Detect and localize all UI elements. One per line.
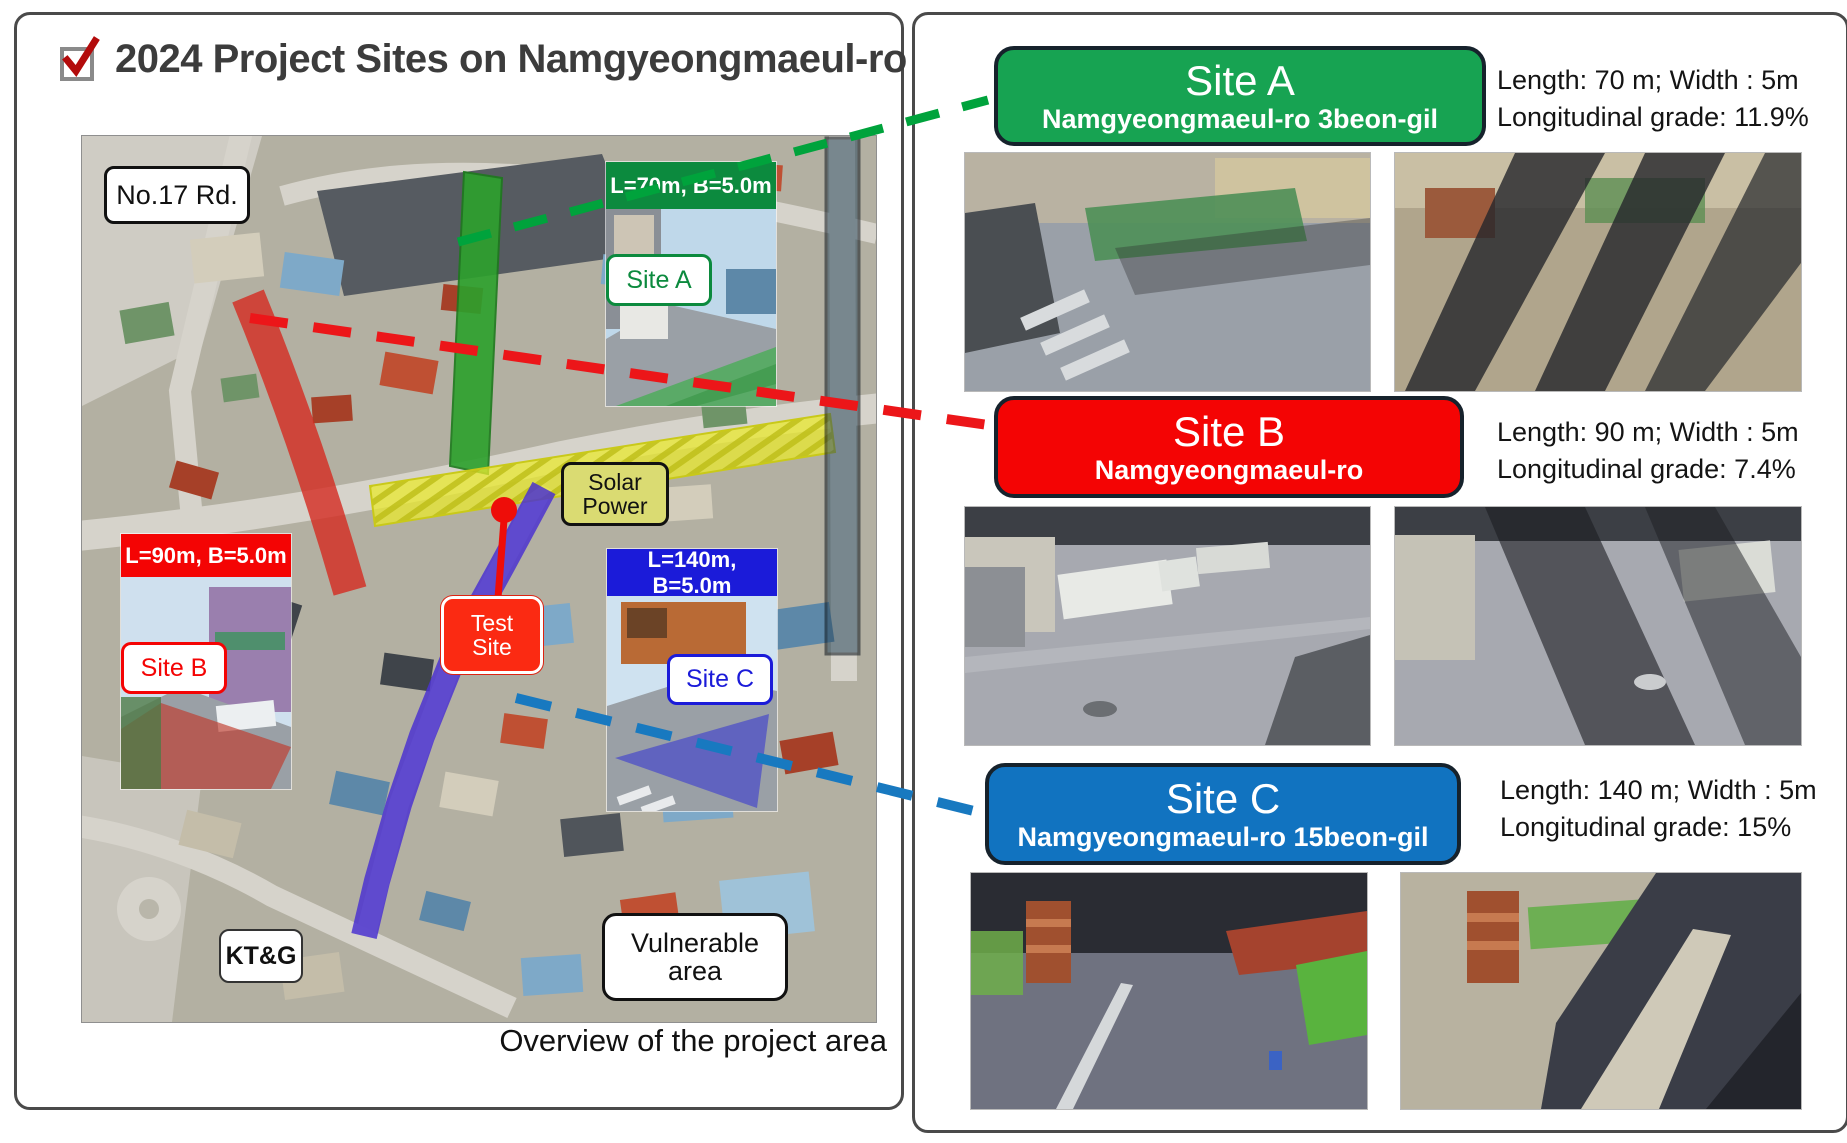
vulnerable-line2: area xyxy=(605,957,785,985)
site-b-road: Namgyeongmaeul-ro xyxy=(998,456,1460,484)
site-a-header: Site A Namgyeongmaeul-ro 3beon-gil xyxy=(994,46,1486,146)
site-c-road: Namgyeongmaeul-ro 15beon-gil xyxy=(989,823,1457,851)
site-b-photo-1 xyxy=(964,506,1371,746)
site-c-length: Length: 140 m; Width : 5m xyxy=(1500,772,1817,809)
map-label-solar-power: Solar Power xyxy=(561,462,669,526)
site-b-map-chip: Site B xyxy=(121,642,227,694)
ktg-text: KT&G xyxy=(221,943,301,969)
map-inset-site-c: L=140m, B=5.0m Site C xyxy=(607,549,777,811)
site-c-dimension-label: L=140m, B=5.0m xyxy=(607,549,777,596)
vulnerable-line1: Vulnerable xyxy=(605,929,785,957)
site-a-length: Length: 70 m; Width : 5m xyxy=(1497,62,1809,99)
site-b-header: Site B Namgyeongmaeul-ro xyxy=(994,396,1464,498)
map-label-ktg: KT&G xyxy=(219,929,303,983)
site-a-info: Length: 70 m; Width : 5m Longitudinal gr… xyxy=(1497,62,1809,136)
site-c-name: Site C xyxy=(989,777,1457,821)
no17-rd-text: No.17 Rd. xyxy=(107,181,247,209)
site-a-name: Site A xyxy=(998,59,1482,103)
site-c-photo-2 xyxy=(1400,872,1802,1110)
site-c-map-chip: Site C xyxy=(667,654,773,705)
site-a-photo-1 xyxy=(964,152,1371,392)
site-c-grade: Longitudinal grade: 15% xyxy=(1500,809,1817,846)
site-a-map-chip: Site A xyxy=(606,254,712,306)
site-a-grade: Longitudinal grade: 11.9% xyxy=(1497,99,1809,136)
site-b-dimension-label: L=90m, B=5.0m xyxy=(121,534,291,577)
map-panel: 2024 Project Sites on Namgyeongmaeul-ro xyxy=(14,12,904,1110)
site-a-dimension-label: L=70m, B=5.0m xyxy=(606,162,776,209)
map-label-no17-rd: No.17 Rd. xyxy=(104,166,250,224)
test-line2: Site xyxy=(444,635,540,659)
site-c-header: Site C Namgyeongmaeul-ro 15beon-gil xyxy=(985,763,1461,865)
satellite-map: No.17 Rd. L=70m, B=5.0m Site A xyxy=(81,135,877,1023)
title-row: 2024 Project Sites on Namgyeongmaeul-ro xyxy=(57,33,907,85)
site-b-grade: Longitudinal grade: 7.4% xyxy=(1497,451,1799,488)
site-c-photo-1 xyxy=(970,872,1368,1110)
site-a-inset-photo xyxy=(606,209,776,406)
solar-line2: Power xyxy=(564,494,666,518)
site-c-info: Length: 140 m; Width : 5m Longitudinal g… xyxy=(1500,772,1817,846)
map-inset-site-a: L=70m, B=5.0m Site A xyxy=(606,162,776,406)
site-b-length: Length: 90 m; Width : 5m xyxy=(1497,414,1799,451)
overview-caption: Overview of the project area xyxy=(357,1023,887,1059)
site-a-road: Namgyeongmaeul-ro 3beon-gil xyxy=(998,105,1482,133)
site-a-photo-2 xyxy=(1394,152,1802,392)
site-b-info: Length: 90 m; Width : 5m Longitudinal gr… xyxy=(1497,414,1799,488)
solar-line1: Solar xyxy=(564,470,666,494)
slide: 2024 Project Sites on Namgyeongmaeul-ro xyxy=(0,0,1847,1143)
map-label-vulnerable-area: Vulnerable area xyxy=(602,913,788,1001)
page-title: 2024 Project Sites on Namgyeongmaeul-ro xyxy=(115,37,907,82)
map-inset-site-b: L=90m, B=5.0m Site B xyxy=(121,534,291,789)
map-label-test-site: Test Site xyxy=(441,596,543,674)
site-b-photo-2 xyxy=(1394,506,1802,746)
test-line1: Test xyxy=(444,611,540,635)
site-b-name: Site B xyxy=(998,410,1460,454)
checked-checkbox-icon xyxy=(57,33,101,85)
